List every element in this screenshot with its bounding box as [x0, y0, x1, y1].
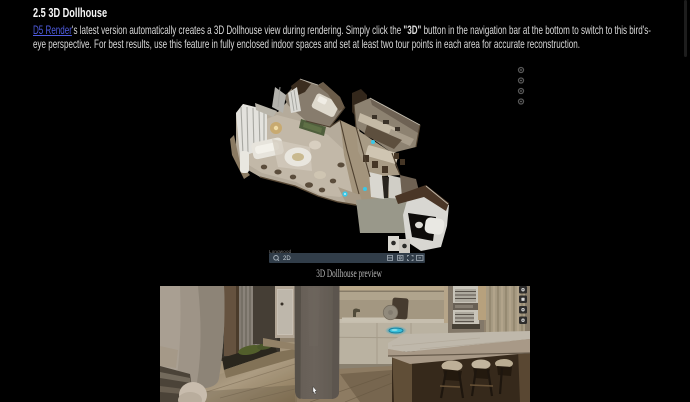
svg-text:2D: 2D [283, 256, 291, 262]
